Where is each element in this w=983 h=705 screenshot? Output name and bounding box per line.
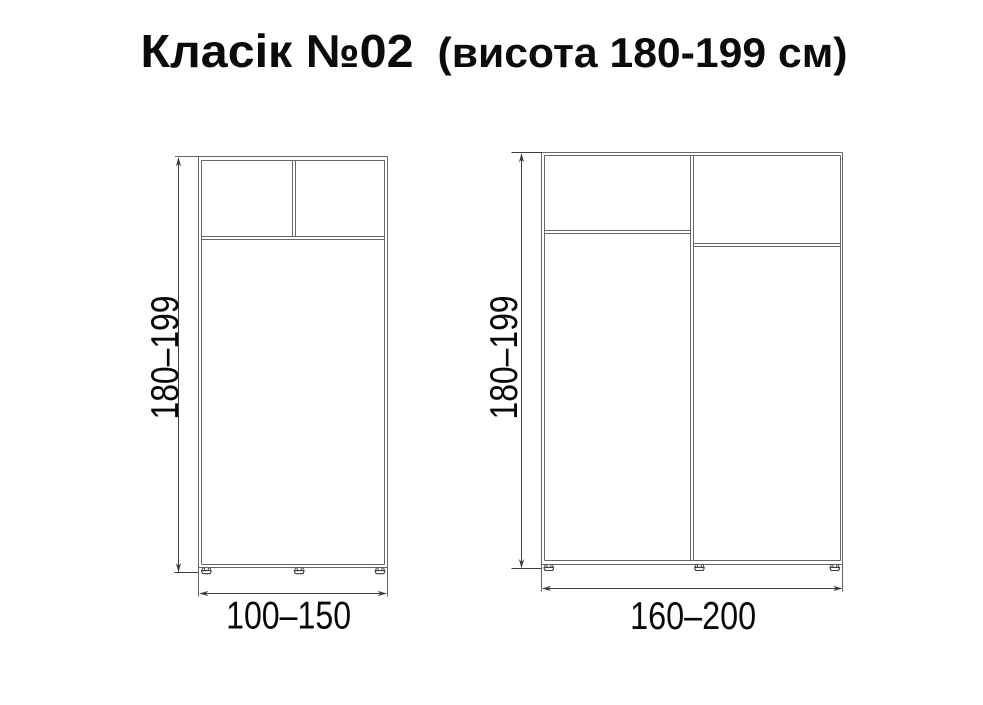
svg-text:Класік №02: Класік №02 — [141, 25, 414, 77]
svg-text:160–200: 160–200 — [630, 595, 756, 638]
svg-text:100–150: 100–150 — [226, 595, 351, 638]
svg-text:180–199: 180–199 — [483, 296, 526, 420]
svg-text:(висота 180-199 см): (висота 180-199 см) — [438, 30, 848, 76]
svg-text:180–199: 180–199 — [144, 296, 187, 420]
